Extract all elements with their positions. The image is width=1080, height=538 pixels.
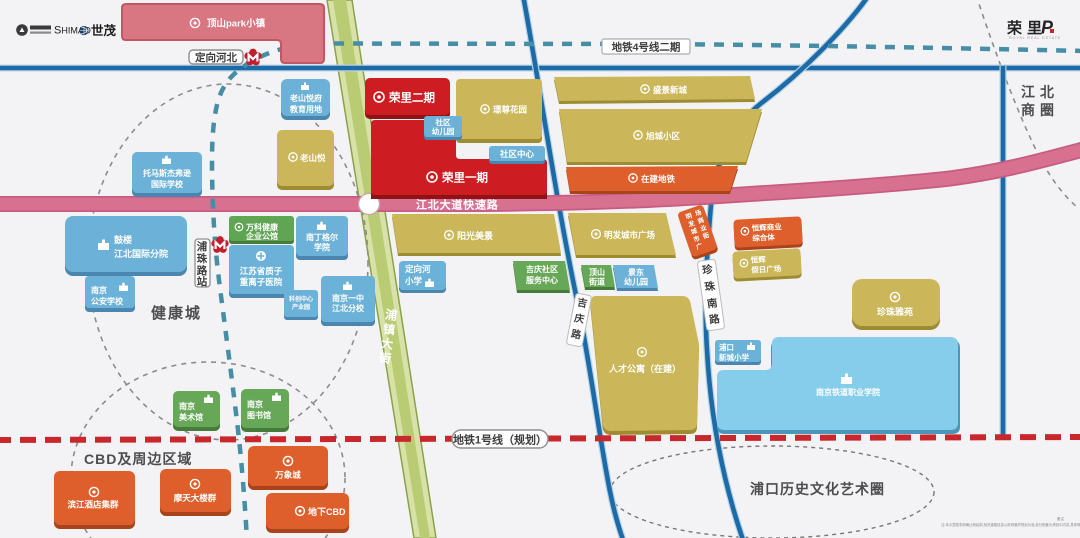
svg-text:江北分校: 江北分校 <box>332 303 365 313</box>
svg-text:在建地铁: 在建地铁 <box>641 174 676 184</box>
svg-text:综合体: 综合体 <box>752 232 775 243</box>
svg-text:南京: 南京 <box>179 401 195 411</box>
svg-text:假日广场: 假日广场 <box>751 263 782 275</box>
svg-text:南京: 南京 <box>247 399 263 409</box>
svg-text:公安学校: 公安学校 <box>91 296 124 306</box>
svg-text:南京一中: 南京一中 <box>332 293 364 303</box>
svg-text:社区中心: 社区中心 <box>499 149 535 159</box>
svg-text:荣里一期: 荣里一期 <box>441 171 488 185</box>
svg-text:江北大道快速路: 江北大道快速路 <box>416 198 499 212</box>
svg-text:璟尊花园: 璟尊花园 <box>493 105 527 115</box>
svg-text:托马斯杰弗逊: 托马斯杰弗逊 <box>143 168 191 178</box>
svg-text:图书馆: 图书馆 <box>247 410 271 420</box>
svg-text:企业公馆: 企业公馆 <box>245 231 278 241</box>
svg-text:地铁4号线二期: 地铁4号线二期 <box>612 41 681 54</box>
svg-text:教育用地: 教育用地 <box>289 104 322 114</box>
svg-text:P: P <box>1041 18 1054 38</box>
svg-text:恒辉商业: 恒辉商业 <box>751 221 782 233</box>
svg-text:浦珠路站: 浦珠路站 <box>197 240 208 288</box>
svg-text:人才公寓（在建）: 人才公寓（在建） <box>608 363 681 374</box>
svg-text:幼儿园: 幼儿园 <box>432 126 455 136</box>
svg-text:健康城: 健康城 <box>151 304 202 322</box>
svg-text:社区: 社区 <box>435 117 451 127</box>
svg-text:科创中心: 科创中心 <box>289 295 313 303</box>
svg-text:恒辉: 恒辉 <box>750 254 766 265</box>
svg-text:世茂: 世茂 <box>91 23 117 38</box>
svg-text:注:本示意图非精确比例绘制,相关道路信息以政府最终规划为准,: 注:本示意图非精确比例绘制,相关道路信息以政府最终规划为准,部分配套为规划中内容… <box>941 522 1080 527</box>
svg-text:万科健康: 万科健康 <box>245 222 279 232</box>
svg-text:江北国际分院: 江北国际分院 <box>114 248 168 259</box>
svg-text:鼓楼: 鼓楼 <box>114 234 132 245</box>
svg-text:定向河: 定向河 <box>404 264 431 274</box>
svg-text:万象城: 万象城 <box>274 470 301 480</box>
svg-text:备注: 备注 <box>1057 516 1065 521</box>
svg-text:国际学校: 国际学校 <box>151 179 184 189</box>
svg-text:地下CBD: 地下CBD <box>308 506 346 517</box>
svg-text:顶山park小镇: 顶山park小镇 <box>207 18 266 30</box>
svg-text:滨江酒店集群: 滨江酒店集群 <box>67 500 119 510</box>
svg-text:江苏省质子: 江苏省质子 <box>240 266 283 276</box>
svg-text:老山悦: 老山悦 <box>299 153 326 163</box>
svg-text:学院: 学院 <box>314 242 330 252</box>
svg-text:服务中心: 服务中心 <box>526 275 558 285</box>
svg-text:南京: 南京 <box>91 285 107 295</box>
svg-text:美术馆: 美术馆 <box>179 412 203 422</box>
svg-text:幼儿园: 幼儿园 <box>624 277 648 287</box>
svg-text:定向河北: 定向河北 <box>194 51 237 64</box>
svg-text:吉庆社区: 吉庆社区 <box>526 264 558 274</box>
svg-text:小学: 小学 <box>404 276 423 286</box>
svg-text:ROYAL REAL ESTATE: ROYAL REAL ESTATE <box>1009 36 1061 40</box>
svg-text:荣里二期: 荣里二期 <box>388 91 435 105</box>
svg-text:重离子医院: 重离子医院 <box>240 277 283 287</box>
svg-text:景东: 景东 <box>628 267 644 277</box>
svg-text:旭城小区: 旭城小区 <box>645 131 681 141</box>
svg-text:摩天大楼群: 摩天大楼群 <box>173 493 217 503</box>
svg-text:南京铁道职业学院: 南京铁道职业学院 <box>816 387 880 397</box>
svg-text:顶山: 顶山 <box>589 267 605 277</box>
svg-text:盛景新城: 盛景新城 <box>653 85 688 95</box>
svg-text:新城小学: 新城小学 <box>719 352 749 362</box>
svg-text:珍珠雅苑: 珍珠雅苑 <box>877 306 913 317</box>
svg-text:明发城市广场: 明发城市广场 <box>604 230 656 240</box>
svg-text:阳光美景: 阳光美景 <box>457 230 493 241</box>
svg-text:南丁格尔: 南丁格尔 <box>306 232 338 242</box>
svg-text:CBD及周边区域: CBD及周边区域 <box>84 451 192 467</box>
svg-text:浦口历史文化艺术圈: 浦口历史文化艺术圈 <box>750 481 885 497</box>
svg-text:老山悦府: 老山悦府 <box>289 93 322 103</box>
svg-text:地铁1号线（规划）: 地铁1号线（规划） <box>453 433 547 447</box>
svg-text:浦口: 浦口 <box>719 342 734 352</box>
svg-text:产业园: 产业园 <box>292 303 310 311</box>
svg-text:街道: 街道 <box>588 277 605 287</box>
